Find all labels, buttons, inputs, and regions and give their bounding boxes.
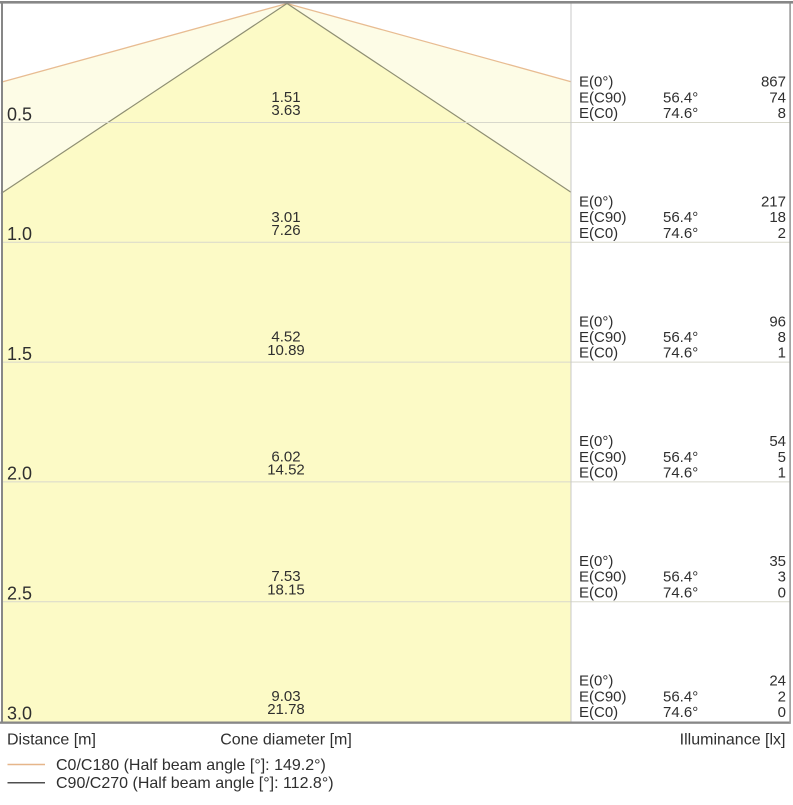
svg-text:2.5: 2.5 [7,584,32,604]
svg-text:0: 0 [778,584,786,601]
svg-text:Cone diameter [m]: Cone diameter [m] [220,732,352,749]
svg-text:7.26: 7.26 [271,222,300,239]
svg-text:3: 3 [778,569,786,586]
svg-text:3.63: 3.63 [271,102,300,119]
svg-text:E(C0): E(C0) [579,225,618,242]
svg-text:8: 8 [778,105,786,122]
svg-text:8: 8 [778,329,786,346]
svg-text:74.6°: 74.6° [663,465,698,482]
svg-text:2.0: 2.0 [7,464,32,484]
svg-text:E(0°): E(0°) [579,194,613,211]
svg-text:74.6°: 74.6° [663,105,698,122]
svg-text:C0/C180 (Half beam angle [°]:: C0/C180 (Half beam angle [°]: 149.2°) [56,757,326,774]
svg-text:E(C0): E(C0) [579,105,618,122]
svg-text:1: 1 [778,345,786,362]
svg-text:E(C0): E(C0) [579,465,618,482]
svg-text:14.52: 14.52 [267,462,305,479]
svg-text:56.4°: 56.4° [663,329,698,346]
svg-text:56.4°: 56.4° [663,89,698,106]
svg-text:Distance [m]: Distance [m] [7,732,96,749]
svg-text:E(C0): E(C0) [579,345,618,362]
svg-text:18.15: 18.15 [267,581,305,598]
svg-text:E(C90): E(C90) [579,449,627,466]
svg-text:E(C0): E(C0) [579,584,618,601]
svg-text:1.0: 1.0 [7,224,32,244]
svg-text:56.4°: 56.4° [663,209,698,226]
svg-text:21.78: 21.78 [267,701,305,718]
svg-text:E(C0): E(C0) [579,704,618,721]
svg-text:1: 1 [778,465,786,482]
svg-text:35: 35 [769,553,786,570]
svg-text:E(0°): E(0°) [579,313,613,330]
svg-text:74: 74 [769,89,786,106]
svg-text:56.4°: 56.4° [663,449,698,466]
svg-text:2: 2 [778,225,786,242]
svg-text:C90/C270 (Half beam angle [°]:: C90/C270 (Half beam angle [°]: 112.8°) [56,775,334,792]
svg-text:Illuminance [lx]: Illuminance [lx] [680,732,786,749]
svg-text:867: 867 [761,74,786,91]
svg-text:1.5: 1.5 [7,344,32,364]
svg-text:56.4°: 56.4° [663,569,698,586]
svg-text:74.6°: 74.6° [663,584,698,601]
svg-text:E(0°): E(0°) [579,74,613,91]
svg-text:0: 0 [778,704,786,721]
svg-text:E(C90): E(C90) [579,89,627,106]
svg-text:96: 96 [769,313,786,330]
svg-text:5: 5 [778,449,786,466]
svg-text:18: 18 [769,209,786,226]
svg-text:74.6°: 74.6° [663,225,698,242]
svg-text:74.6°: 74.6° [663,345,698,362]
svg-text:10.89: 10.89 [267,342,305,359]
svg-text:E(C90): E(C90) [579,329,627,346]
svg-text:217: 217 [761,194,786,211]
svg-text:74.6°: 74.6° [663,704,698,721]
svg-text:E(0°): E(0°) [579,553,613,570]
svg-text:0.5: 0.5 [7,104,32,124]
svg-text:3.0: 3.0 [7,703,32,723]
svg-text:2: 2 [778,688,786,705]
svg-text:E(C90): E(C90) [579,209,627,226]
svg-text:56.4°: 56.4° [663,688,698,705]
svg-text:54: 54 [769,433,786,450]
svg-text:E(C90): E(C90) [579,569,627,586]
svg-text:E(0°): E(0°) [579,433,613,450]
svg-text:24: 24 [769,673,786,690]
svg-text:E(0°): E(0°) [579,673,613,690]
svg-text:E(C90): E(C90) [579,688,627,705]
